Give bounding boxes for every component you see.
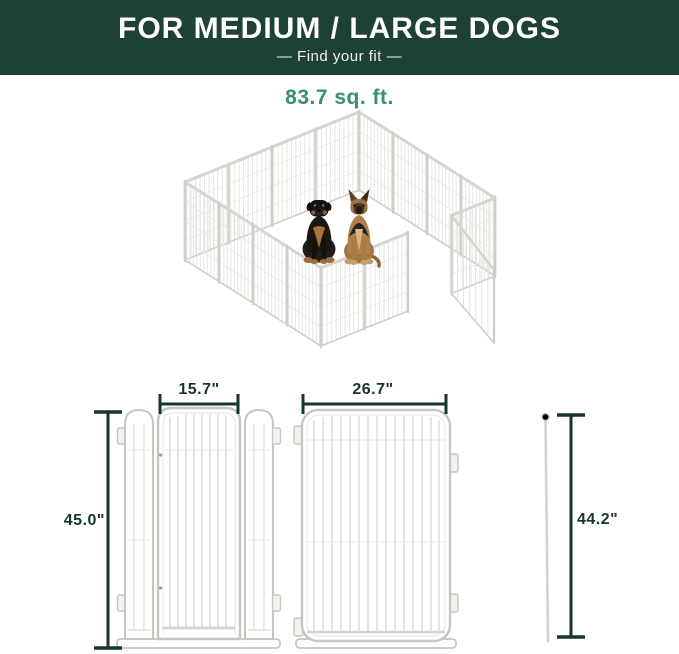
area-size-label: 83.7 sq. ft. <box>0 86 679 110</box>
gate-height-label: 45.0" <box>33 512 105 530</box>
banner-subtitle: — Find your fit — <box>0 48 679 65</box>
german-shepherd-illustration <box>344 189 379 266</box>
panel-width-label: 26.7" <box>323 381 423 399</box>
banner-title: FOR MEDIUM / LARGE DOGS <box>0 0 679 45</box>
rottweiler-illustration <box>303 200 336 264</box>
playpen-walls <box>185 111 495 347</box>
large-panel-diagram <box>294 410 458 648</box>
stake-height-label: 44.2" <box>577 511 618 529</box>
gate-width-label: 15.7" <box>149 381 249 399</box>
playpen-illustration <box>163 110 508 372</box>
header-banner: FOR MEDIUM / LARGE DOGS — Find your fit … <box>0 0 679 75</box>
door-panel-diagram <box>117 408 281 648</box>
ground-stake-diagram <box>542 413 549 641</box>
